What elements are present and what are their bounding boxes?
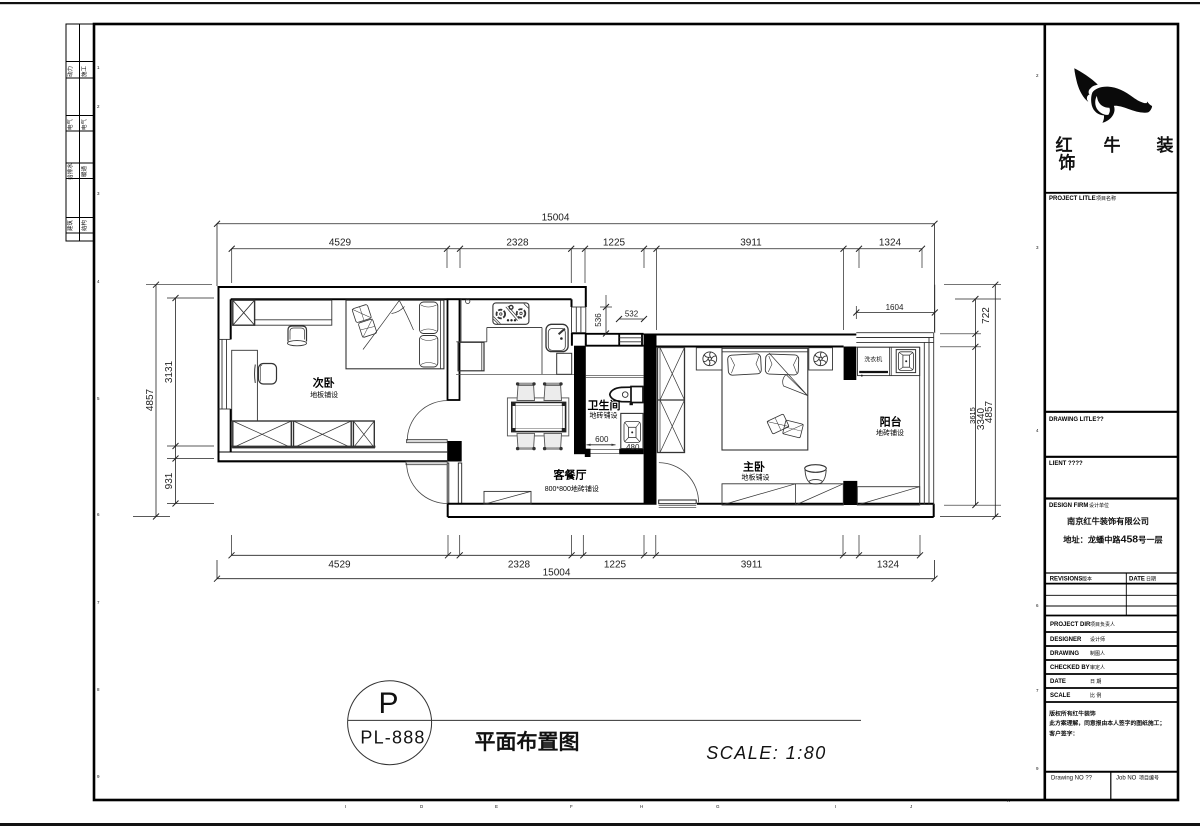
svg-text:3131: 3131 — [164, 360, 175, 383]
svg-text:动力: 动力 — [66, 66, 74, 77]
svg-text:600: 600 — [595, 435, 609, 444]
svg-text:DESIGNER: DESIGNER — [1050, 637, 1082, 643]
svg-text:阳台: 阳台 — [880, 415, 902, 429]
svg-text:客户签字：: 客户签字： — [1048, 730, 1078, 738]
svg-text:E: E — [495, 804, 498, 809]
svg-text:日 期: 日 期 — [1090, 679, 1101, 685]
svg-text:暖通: 暖通 — [80, 166, 88, 178]
svg-text:1324: 1324 — [877, 559, 900, 570]
svg-text:15004: 15004 — [543, 567, 571, 578]
svg-text:I: I — [345, 804, 346, 809]
svg-text:2328: 2328 — [508, 559, 531, 570]
svg-text:项目负责人: 项目负责人 — [1090, 621, 1115, 628]
svg-text:项目编号: 项目编号 — [1139, 775, 1159, 782]
svg-text:H: H — [640, 804, 643, 809]
svg-text:电气: 电气 — [80, 119, 88, 131]
svg-text:版权所有红牛装饰: 版权所有红牛装饰 — [1048, 710, 1096, 718]
svg-text:审定人: 审定人 — [1090, 664, 1105, 671]
svg-text:1225: 1225 — [604, 559, 627, 570]
svg-text:3911: 3911 — [740, 238, 762, 249]
svg-text:15004: 15004 — [542, 213, 570, 224]
svg-text:4857: 4857 — [145, 388, 156, 411]
svg-text:CHECKED BY: CHECKED BY — [1050, 665, 1090, 671]
svg-text:牛: 牛 — [1104, 135, 1121, 155]
svg-text:装: 装 — [1156, 135, 1174, 155]
svg-text:G: G — [716, 804, 720, 809]
svg-text:DRAWING: DRAWING — [1050, 651, 1079, 657]
svg-text:饰: 饰 — [1059, 153, 1076, 173]
svg-text:地板铺设: 地板铺设 — [310, 390, 338, 399]
svg-text:南京红牛装饰有限公司: 南京红牛装饰有限公司 — [1067, 516, 1149, 526]
svg-text:Drawing NO ??: Drawing NO ?? — [1051, 776, 1093, 782]
svg-text:施工: 施工 — [80, 66, 88, 78]
svg-text:版本: 版本 — [1082, 576, 1092, 583]
svg-text:DATE: DATE — [1129, 577, 1145, 583]
svg-text:DRAWING LITLE??: DRAWING LITLE?? — [1049, 417, 1104, 423]
svg-text:3340: 3340 — [976, 407, 987, 430]
svg-text:480: 480 — [626, 443, 640, 452]
svg-text:1225: 1225 — [603, 238, 626, 249]
svg-text:SCALE: SCALE — [1050, 693, 1070, 699]
svg-text:设计师: 设计师 — [1090, 636, 1105, 643]
svg-text:电气: 电气 — [66, 119, 74, 131]
svg-text:日期: 日期 — [1146, 577, 1156, 583]
svg-text:536: 536 — [594, 313, 603, 327]
svg-text:红: 红 — [1056, 135, 1073, 155]
svg-text:Job NO: Job NO — [1116, 776, 1137, 782]
svg-text:PROJECT DIR: PROJECT DIR — [1050, 622, 1091, 628]
svg-text:平面布置图: 平面布置图 — [475, 730, 580, 754]
svg-text:地砖铺设: 地砖铺设 — [876, 428, 904, 437]
svg-text:建筑: 建筑 — [66, 220, 74, 232]
svg-text:PL-888: PL-888 — [360, 728, 425, 748]
svg-text:2328: 2328 — [506, 238, 529, 249]
svg-text:REVISIONS: REVISIONS — [1050, 577, 1083, 583]
svg-text:4529: 4529 — [329, 238, 352, 249]
svg-text:卫生间: 卫生间 — [588, 398, 621, 412]
svg-text:客餐厅: 客餐厅 — [553, 468, 587, 482]
svg-text:722: 722 — [981, 307, 992, 324]
svg-text:532: 532 — [625, 310, 639, 319]
svg-text:地砖铺设: 地砖铺设 — [590, 411, 618, 420]
svg-text:3911: 3911 — [741, 559, 763, 570]
svg-text:SCALE: 1:80: SCALE: 1:80 — [706, 743, 827, 763]
svg-text:800*800地砖铺设: 800*800地砖铺设 — [545, 484, 599, 493]
svg-text:地址：龙蟠中路458号一层: 地址：龙蟠中路458号一层 — [1063, 534, 1162, 546]
svg-text:LIENT ????: LIENT ???? — [1049, 461, 1083, 467]
svg-text:洗衣机: 洗衣机 — [864, 356, 882, 364]
svg-text:DATE: DATE — [1050, 679, 1066, 685]
svg-text:结构: 结构 — [80, 220, 88, 232]
svg-text:I: I — [835, 804, 836, 809]
svg-text:K: K — [1007, 798, 1010, 803]
svg-text:DESIGN FIRM: DESIGN FIRM — [1049, 503, 1088, 509]
svg-text:地板铺设: 地板铺设 — [742, 473, 770, 482]
svg-text:4529: 4529 — [328, 559, 351, 570]
svg-text:F: F — [570, 804, 573, 809]
svg-text:给排水: 给排水 — [66, 163, 74, 180]
svg-text:次卧: 次卧 — [313, 376, 335, 390]
svg-text:主卧: 主卧 — [743, 460, 765, 474]
svg-text:P: P — [378, 687, 398, 720]
svg-text:1604: 1604 — [886, 303, 904, 312]
svg-text:制图人: 制图人 — [1090, 650, 1105, 657]
svg-text:此方案理解，同意报由本人签字的图纸施工；: 此方案理解，同意报由本人签字的图纸施工； — [1049, 719, 1165, 727]
svg-text:J: J — [910, 804, 912, 809]
svg-text:931: 931 — [164, 472, 175, 489]
svg-text:项目名称: 项目名称 — [1096, 195, 1116, 202]
svg-text:PROJECT LITLE: PROJECT LITLE — [1049, 196, 1096, 202]
svg-text:1324: 1324 — [879, 238, 902, 249]
svg-text:设计单位: 设计单位 — [1089, 502, 1109, 509]
svg-text:比 例: 比 例 — [1090, 692, 1101, 699]
